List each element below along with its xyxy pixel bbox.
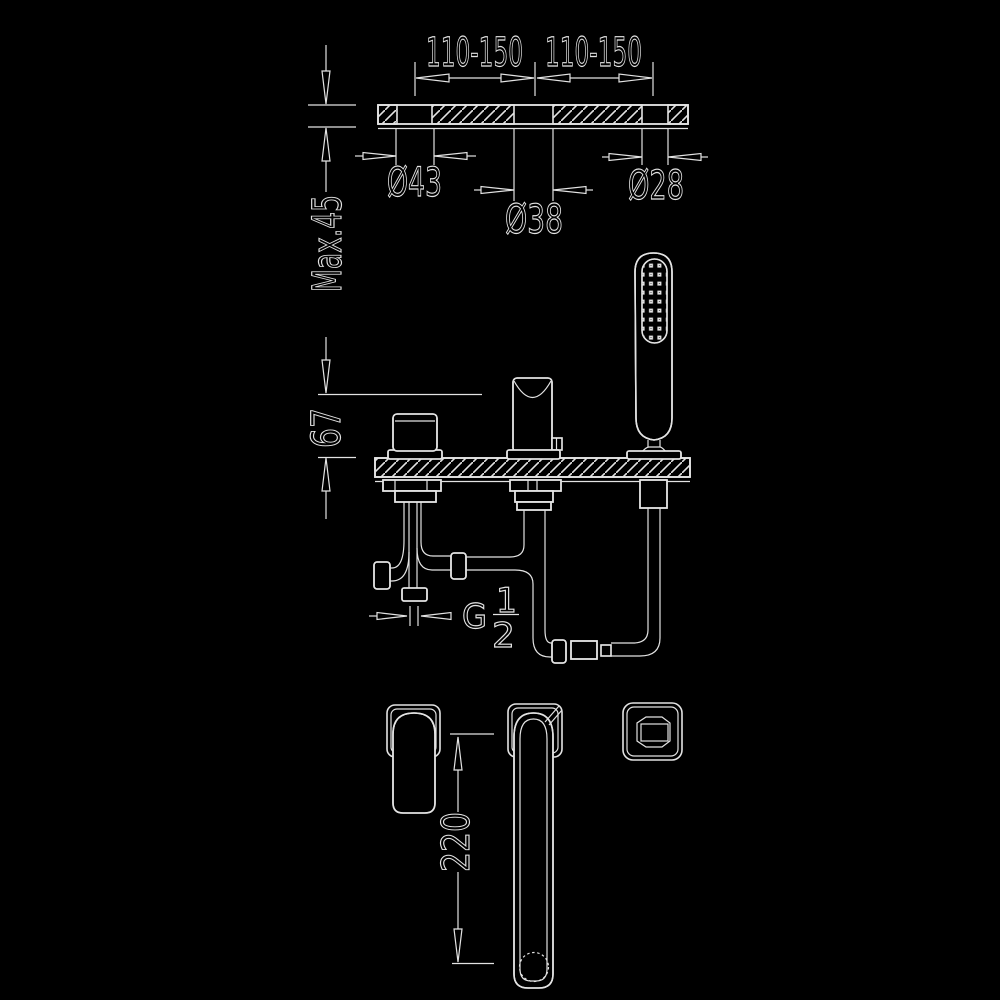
spout-side-view (507, 378, 562, 459)
handle-top-view (387, 705, 440, 813)
dim-label-d28: Ø28 (628, 163, 684, 209)
dim-label-67: 67 (304, 408, 350, 448)
dim-label-g-den: 2 (492, 616, 515, 656)
shower-holder-top-view (623, 703, 682, 760)
dim-label-max45: Max.45 (305, 195, 351, 292)
drawing-canvas: 110-150 110-150 Max.45 Ø43 Ø38 (0, 0, 1000, 1000)
dimension-hole-left: Ø43 (355, 129, 476, 206)
dimension-hole-right: Ø28 (602, 129, 708, 209)
dim-label-220: 220 (434, 812, 478, 872)
dim-label-span-right: 110-150 (545, 30, 642, 76)
deck-section-top-view (378, 105, 688, 129)
dimension-spout-length: 220 (434, 734, 494, 964)
spout-underside-plumbing (466, 480, 611, 663)
spout-top-view (508, 704, 562, 988)
hand-shower-side-view (627, 253, 681, 459)
valve-underside-plumbing (374, 480, 466, 601)
dim-label-g: G (462, 597, 487, 637)
dim-label-span-left: 110-150 (426, 30, 523, 76)
dimension-hole-spacing: 110-150 110-150 (415, 30, 653, 96)
dim-label-d43: Ø43 (387, 160, 442, 206)
dimension-thread-g12: G 1 2 (369, 581, 519, 656)
deck-section-side-view (375, 458, 690, 482)
handle-side-view (388, 414, 442, 459)
dimension-hole-center: Ø38 (474, 129, 593, 243)
faucet-technical-drawing: 110-150 110-150 Max.45 Ø43 Ø38 (0, 0, 1000, 1000)
dim-label-d38: Ø38 (505, 197, 563, 243)
dimension-deck-thickness: Max.45 (305, 45, 356, 292)
hand-shower-hose-plumbing (611, 480, 667, 656)
